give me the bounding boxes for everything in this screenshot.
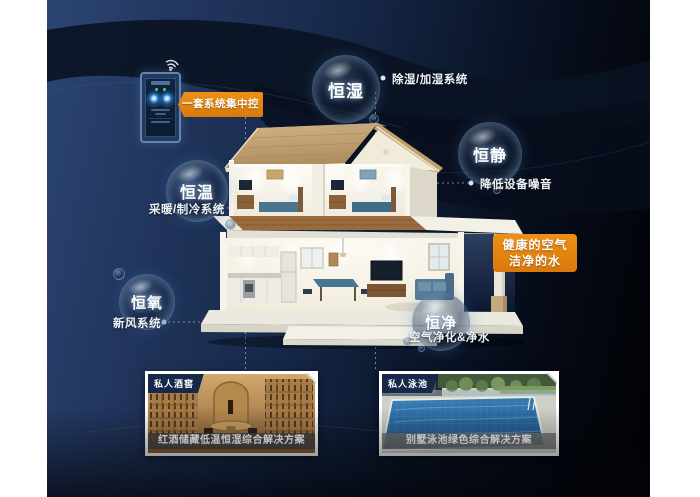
mini-bubble bbox=[418, 345, 425, 352]
label-hvac-system: 采暖/制冷系统 bbox=[149, 201, 225, 217]
gauge-icon bbox=[148, 93, 160, 105]
controller-screen bbox=[145, 78, 176, 137]
healthy-badge-line2: 洁净的水 bbox=[509, 253, 561, 269]
healthy-badge-line1: 健康的空气 bbox=[502, 237, 567, 253]
mini-bubble bbox=[113, 268, 125, 280]
label-air-water-purification: 空气净化&净水 bbox=[409, 329, 490, 345]
connector-dot bbox=[381, 76, 386, 81]
mini-bubble bbox=[225, 219, 236, 230]
bubble-label: 恒静 bbox=[473, 142, 507, 166]
bottom-shadow-overlay bbox=[47, 407, 650, 497]
bubble-label: 恒湿 bbox=[328, 77, 364, 102]
central-control-badge: 一套系统集中控制 bbox=[178, 92, 263, 117]
bubble-label: 恒温 bbox=[180, 179, 214, 203]
gauge-icon bbox=[161, 93, 173, 105]
controller-phone bbox=[140, 72, 181, 143]
card-tag: 私人泳池 bbox=[381, 373, 438, 393]
background-panel: 一套系统集中控制 健康的空气 洁净的水 恒湿 恒静 恒温 恒氧 恒净 除湿/加湿… bbox=[47, 0, 650, 497]
label-fresh-air-system: 新风系统 bbox=[113, 315, 161, 331]
mini-bubble bbox=[369, 114, 379, 124]
healthy-air-water-badge: 健康的空气 洁净的水 bbox=[493, 234, 577, 272]
label-noise-reduction: 降低设备噪音 bbox=[480, 176, 552, 192]
bubble-label: 恒氧 bbox=[131, 292, 163, 313]
smart-home-infographic: 一套系统集中控制 健康的空气 洁净的水 恒湿 恒静 恒温 恒氧 恒净 除湿/加湿… bbox=[0, 0, 700, 497]
bubble-constant-humidity: 恒湿 bbox=[312, 55, 380, 123]
label-dehumidify-system: 除湿/加湿系统 bbox=[392, 71, 468, 87]
folded-corner-icon bbox=[305, 373, 316, 384]
folded-corner-icon bbox=[546, 373, 557, 384]
card-tag: 私人酒窖 bbox=[147, 373, 204, 393]
